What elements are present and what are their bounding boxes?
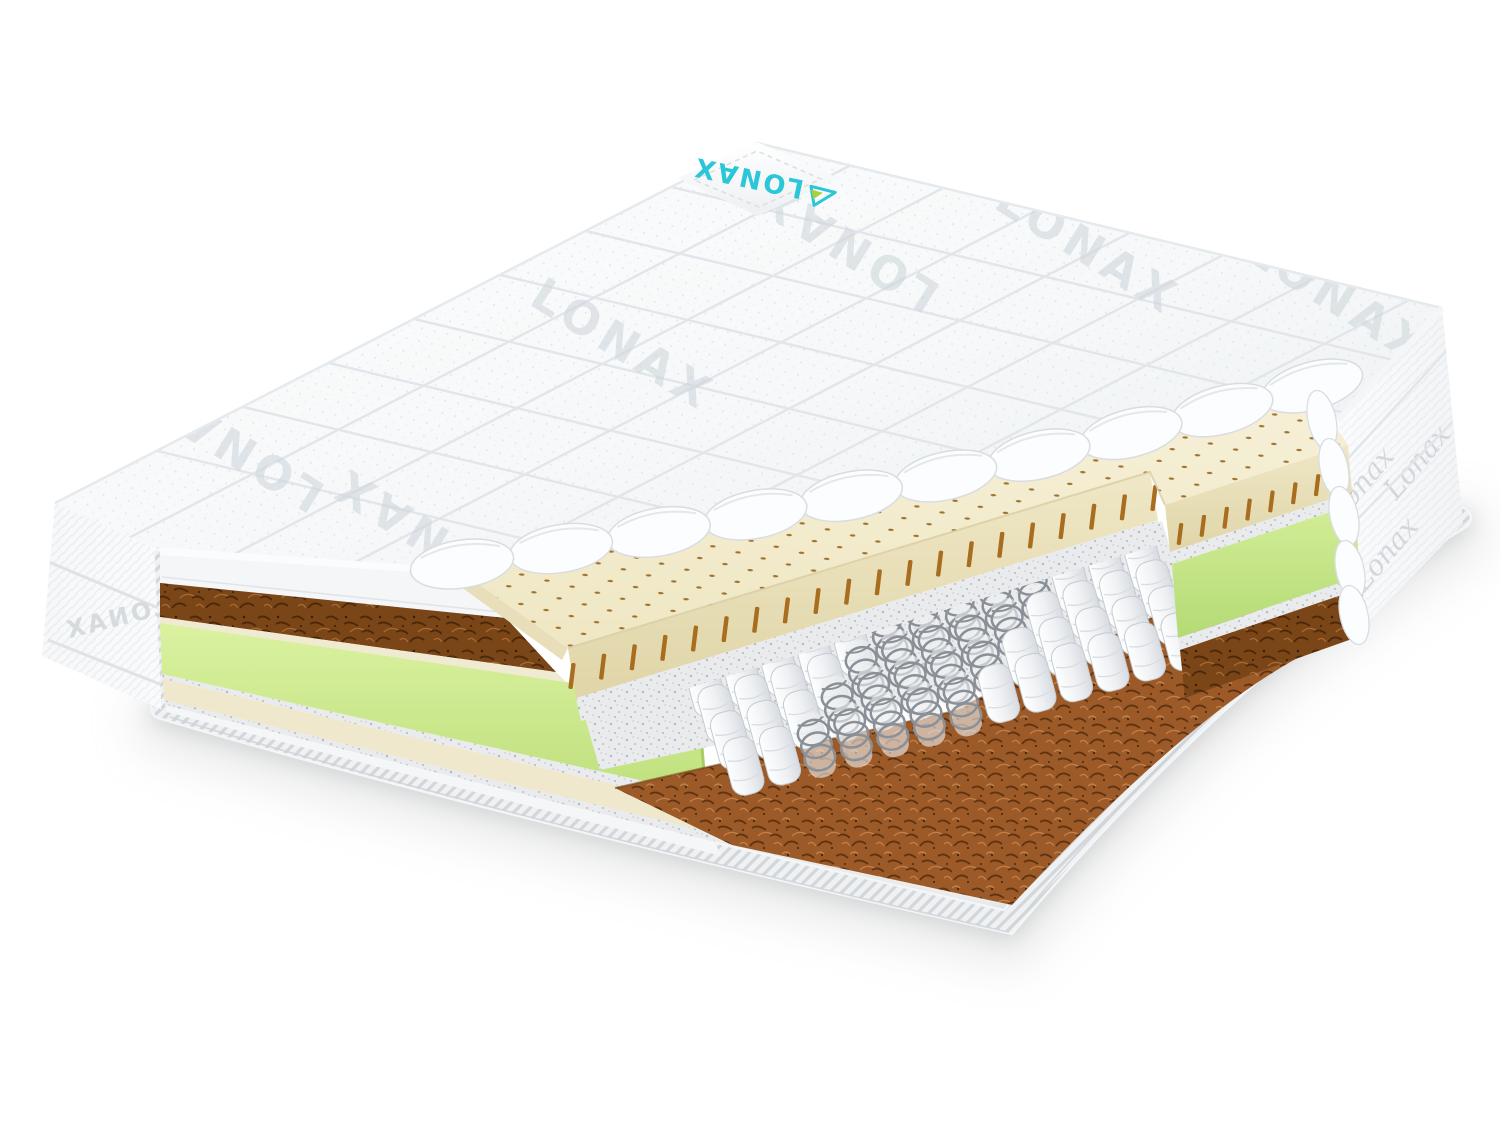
product-image-stage: LONAX LonaxLonaxLonax: [0, 0, 1500, 1125]
mattress-cutaway-render: LONAX LonaxLonaxLonax: [0, 0, 1500, 1125]
